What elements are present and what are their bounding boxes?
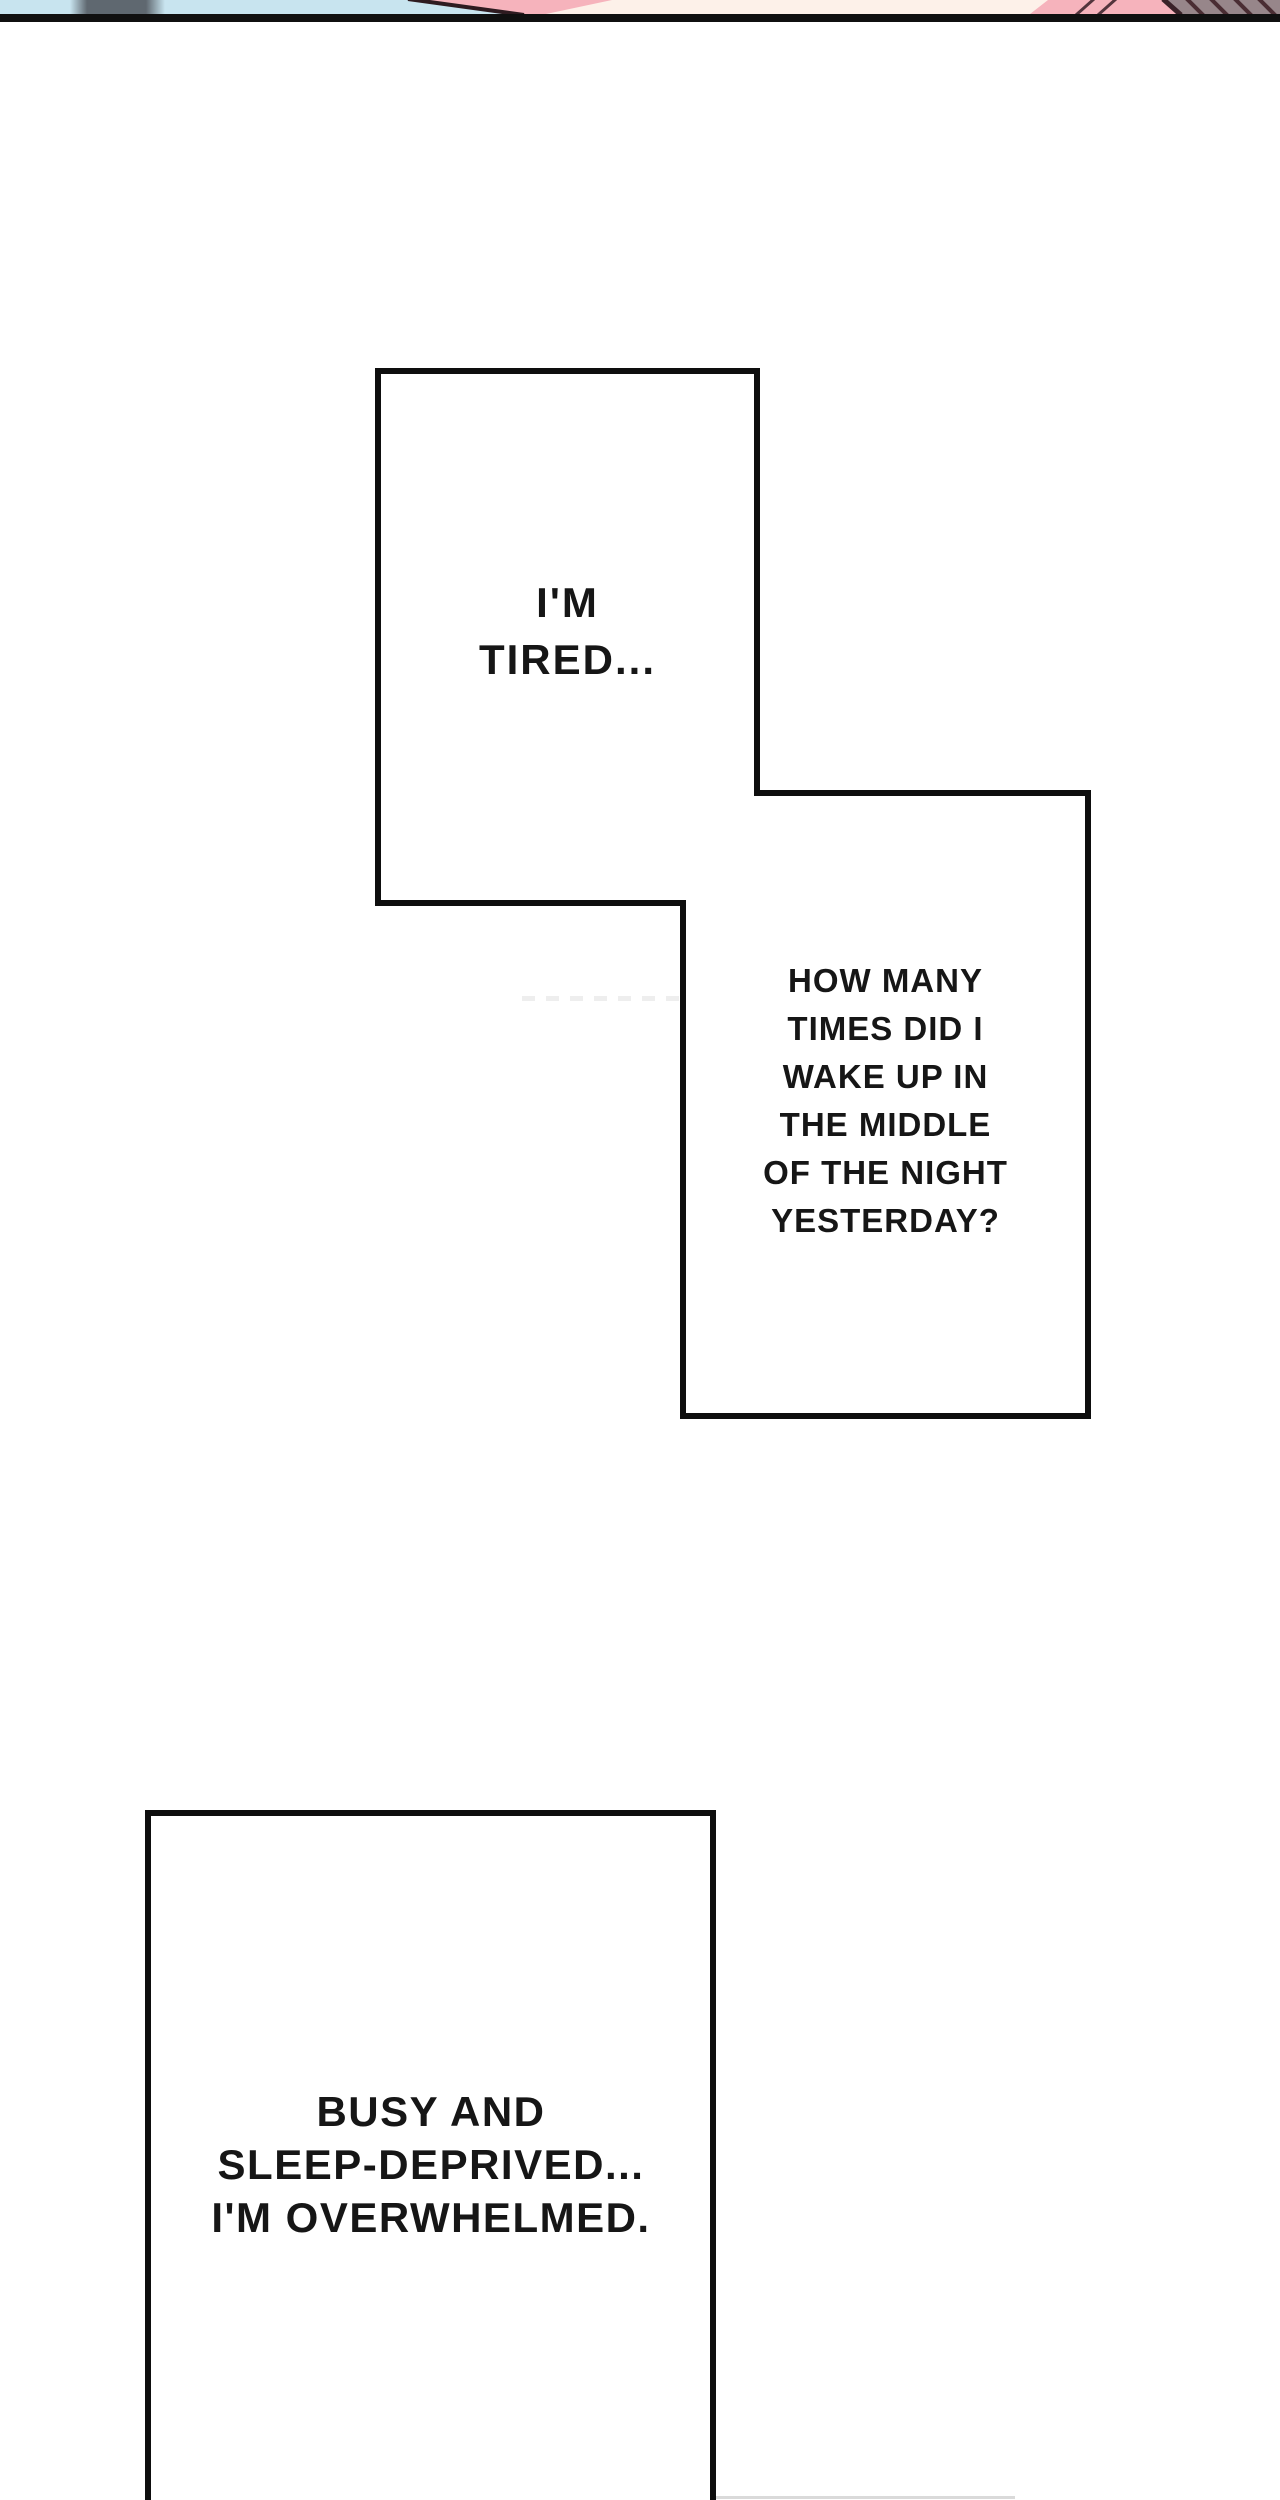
text-line: WAKE UP IN [683, 1053, 1088, 1101]
text-line: I'M [378, 574, 757, 631]
text-line: TIRED... [378, 631, 757, 688]
text-line: TIMES DID I [683, 1005, 1088, 1053]
bubble-1-2-outline [378, 371, 1088, 1416]
speech-bubble-1-text: I'M TIRED... [378, 574, 757, 688]
text-line: OF THE NIGHT [683, 1149, 1088, 1197]
text-line: YESTERDAY? [683, 1197, 1088, 1245]
manga-page: I'M TIRED... HOW MANY TIMES DID I WAKE U… [0, 0, 1280, 2500]
speech-bubble-2-text: HOW MANY TIMES DID I WAKE UP IN THE MIDD… [683, 957, 1088, 1245]
text-line: I'M OVERWHELMED. [148, 2191, 714, 2244]
text-line: BUSY AND [148, 2085, 714, 2138]
text-line: HOW MANY [683, 957, 1088, 1005]
text-line: THE MIDDLE [683, 1101, 1088, 1149]
text-line: SLEEP-DEPRIVED... [148, 2138, 714, 2191]
speech-bubble-3-text: BUSY AND SLEEP-DEPRIVED... I'M OVERWHELM… [148, 2085, 714, 2244]
